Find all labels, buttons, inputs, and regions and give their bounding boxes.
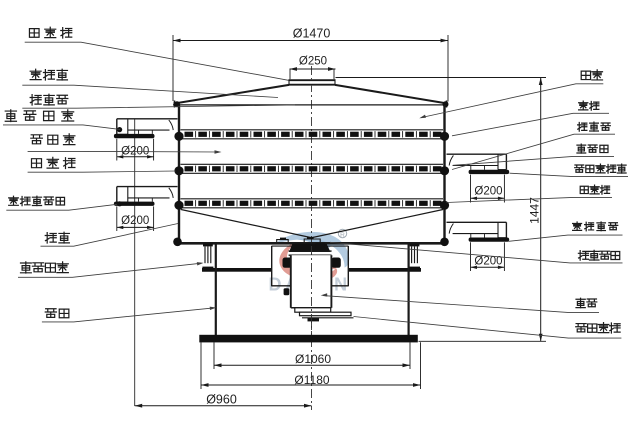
svg-text:Ø1060: Ø1060 xyxy=(295,352,331,366)
svg-text:R: R xyxy=(340,232,345,239)
svg-text:1447: 1447 xyxy=(528,197,542,224)
svg-text:Ø200: Ø200 xyxy=(474,185,502,197)
svg-text:Ø250: Ø250 xyxy=(299,56,327,68)
svg-text:Ø200: Ø200 xyxy=(121,215,149,227)
svg-text:Ø960: Ø960 xyxy=(206,393,237,407)
svg-text:Ø1470: Ø1470 xyxy=(293,27,331,41)
svg-text:Ø1180: Ø1180 xyxy=(294,373,329,387)
